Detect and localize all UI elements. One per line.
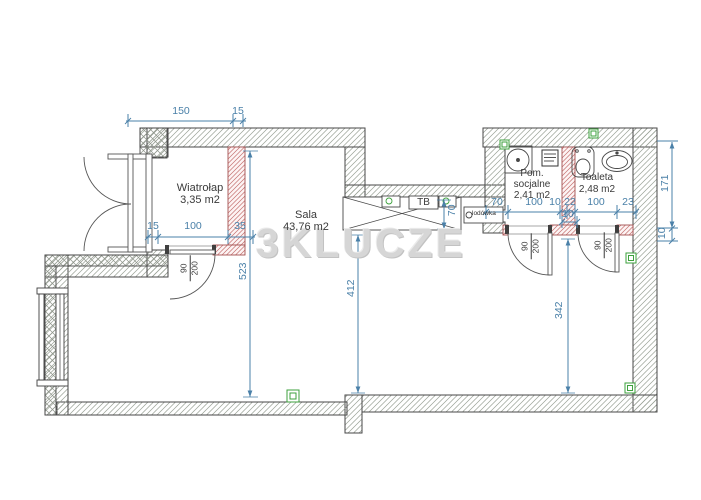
room-label-pom-socjalne-2: socjalne	[502, 179, 562, 191]
power-outlet-icon	[287, 390, 299, 402]
room-label-sala: Sala	[266, 209, 346, 222]
dim-entry-width: 150	[156, 106, 206, 117]
dim-right-wall-10: 10	[657, 223, 668, 243]
room-label-toaleta: Toaleta	[567, 172, 627, 184]
power-outlet-icon	[589, 129, 598, 138]
dim-toaleta-right: 23	[616, 197, 640, 208]
dim-sala-height: 523	[238, 253, 249, 289]
dim-entry-wall: 15	[226, 106, 250, 117]
entrance-double-door	[84, 154, 152, 252]
dim-sala-inner-height: 412	[346, 270, 357, 306]
floor-plan: 3KLUCZE Wiatrołap 3,35 m2 Sala 43,76 m2 …	[0, 0, 701, 500]
door-size-label: 90200	[180, 255, 201, 281]
power-outlet-icon	[500, 140, 509, 149]
room-area-toaleta: 2,48 m2	[567, 184, 627, 196]
appliance-box	[542, 150, 558, 166]
power-outlet-icon	[626, 253, 636, 263]
power-outlet-icon	[625, 383, 635, 393]
fridge-label: lodówka	[472, 210, 502, 217]
sink-icon	[602, 151, 632, 172]
dim-corridor-height: 342	[554, 292, 565, 328]
dim-fridge-width: 70	[482, 197, 512, 208]
dim-gap-small: 10	[547, 197, 563, 208]
dim-wiatrolap-left: 15	[141, 221, 165, 232]
door-size-label: 90200	[521, 233, 542, 259]
room-area-sala: 43,76 m2	[266, 221, 346, 234]
dim-right-height: 171	[660, 165, 671, 201]
dim-niche-10: 10	[560, 209, 576, 220]
room-label-wiatrolap: Wiatrołap	[160, 182, 240, 195]
room-label-pom-socjalne: Pom.	[502, 168, 562, 180]
dim-wiatrolap-width: 100	[173, 221, 213, 232]
dim-toaleta-width: 100	[576, 197, 616, 208]
dim-wiatrolap-wall: 35	[228, 221, 252, 232]
room-area-wiatrolap: 3,35 m2	[160, 194, 240, 207]
dim-counter-depth: 70	[447, 198, 458, 222]
tb-label: TB	[409, 197, 438, 209]
door-size-label: 90200	[594, 232, 615, 258]
